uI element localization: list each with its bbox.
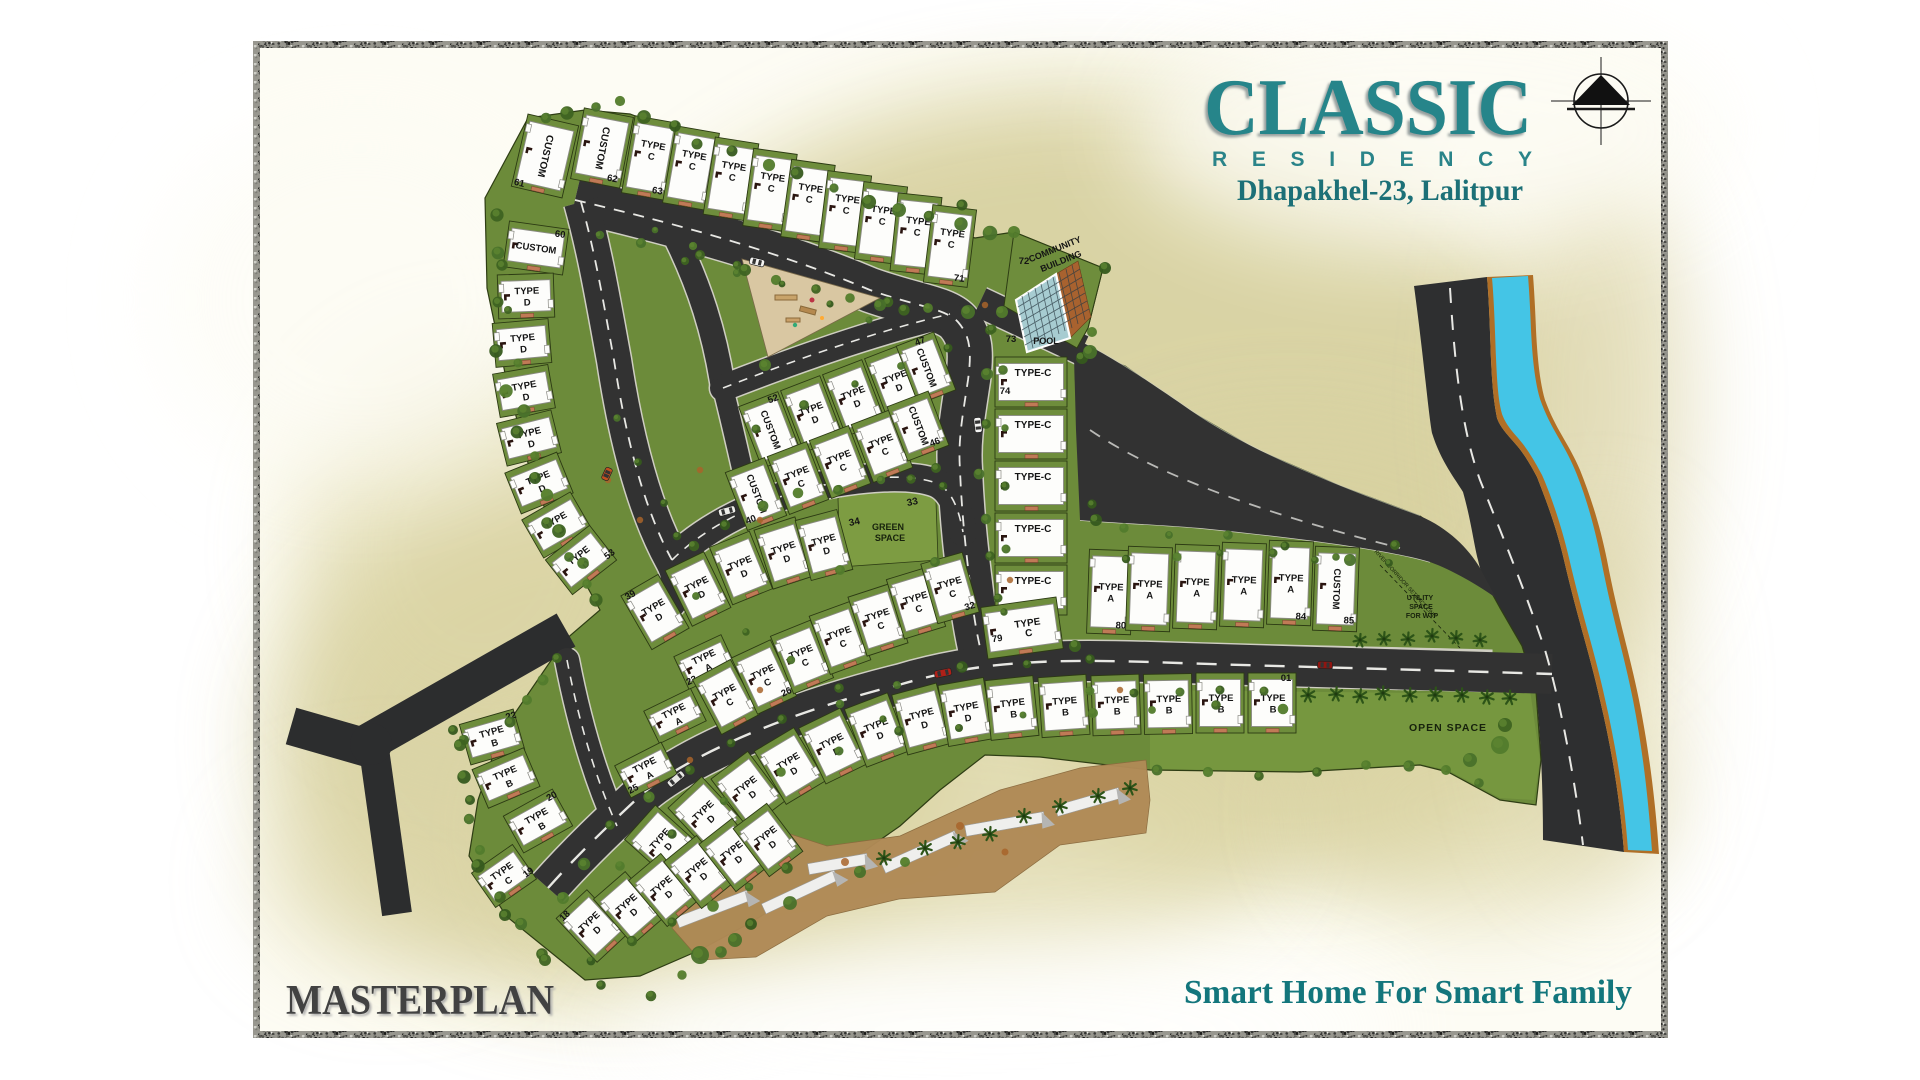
svg-text:CUSTOM: CUSTOM <box>1330 568 1342 609</box>
svg-text:TYPE: TYPE <box>514 286 539 298</box>
svg-text:OPEN SPACE: OPEN SPACE <box>1409 722 1487 734</box>
svg-text:72: 72 <box>1019 256 1030 267</box>
svg-text:TYPE-C: TYPE-C <box>1015 472 1052 483</box>
svg-text:GREEN: GREEN <box>872 522 904 532</box>
svg-text:85: 85 <box>1343 615 1355 626</box>
svg-text:71: 71 <box>953 273 966 285</box>
svg-text:RESIDENCY: RESIDENCY <box>1212 148 1532 171</box>
svg-text:62: 62 <box>606 173 618 186</box>
svg-text:01: 01 <box>1281 673 1292 684</box>
svg-text:D: D <box>524 297 531 308</box>
svg-text:C: C <box>913 227 921 239</box>
svg-text:C: C <box>1024 628 1033 640</box>
svg-text:84: 84 <box>1295 611 1307 622</box>
svg-text:B: B <box>1166 705 1173 716</box>
svg-text:A: A <box>1193 588 1200 599</box>
svg-text:TYPE-C: TYPE-C <box>1015 368 1052 379</box>
svg-text:TYPE-C: TYPE-C <box>1015 524 1052 535</box>
svg-text:TYPE: TYPE <box>510 332 536 345</box>
svg-text:TYPE: TYPE <box>1185 577 1210 589</box>
svg-text:TYPE: TYPE <box>1138 579 1163 591</box>
svg-text:80: 80 <box>1115 620 1126 631</box>
svg-text:A: A <box>1240 586 1247 597</box>
svg-text:74: 74 <box>1000 386 1011 397</box>
svg-text:B: B <box>1114 706 1121 717</box>
svg-text:CLASSIC: CLASSIC <box>1204 64 1532 152</box>
svg-text:79: 79 <box>991 633 1003 645</box>
svg-text:POOL: POOL <box>1033 336 1059 346</box>
svg-text:TYPE: TYPE <box>1279 573 1304 585</box>
svg-text:Dhapakhel-23, Lalitpur: Dhapakhel-23, Lalitpur <box>1237 174 1523 207</box>
svg-text:TYPE: TYPE <box>1052 695 1078 708</box>
svg-text:73: 73 <box>1006 334 1017 345</box>
svg-text:A: A <box>1146 590 1153 601</box>
svg-text:A: A <box>1107 593 1114 604</box>
svg-text:TYPE: TYPE <box>1104 695 1129 707</box>
svg-text:A: A <box>1287 584 1294 595</box>
svg-text:MASTERPLAN: MASTERPLAN <box>286 978 554 1024</box>
svg-text:D: D <box>520 344 528 356</box>
svg-text:TYPE-C: TYPE-C <box>1015 420 1052 431</box>
svg-text:63: 63 <box>651 185 663 198</box>
svg-text:TYPE: TYPE <box>1232 575 1257 587</box>
svg-text:B: B <box>1270 705 1277 716</box>
svg-text:SPACE: SPACE <box>875 533 905 543</box>
svg-text:B: B <box>1010 709 1018 721</box>
svg-text:TYPE-C: TYPE-C <box>1015 576 1052 587</box>
svg-text:TYPE: TYPE <box>1099 582 1124 594</box>
svg-text:60: 60 <box>554 229 566 241</box>
svg-text:Smart Home For Smart Family: Smart Home For Smart Family <box>1184 974 1632 1011</box>
svg-text:B: B <box>1062 707 1070 718</box>
